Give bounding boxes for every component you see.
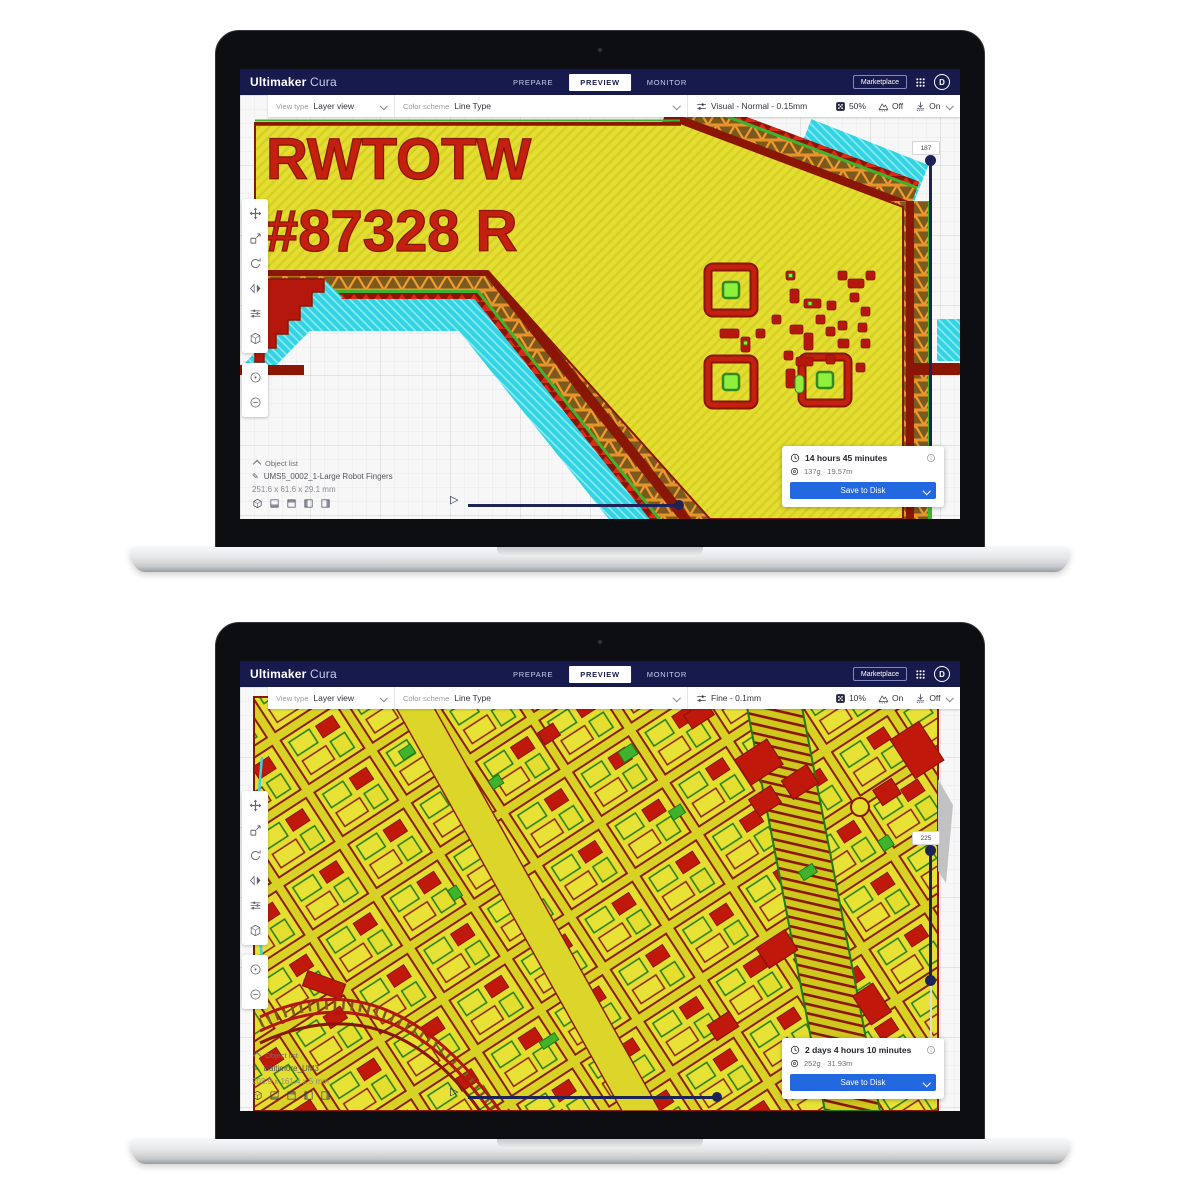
extruder-1-button[interactable] — [244, 365, 266, 390]
profile-value: Visual - Normal - 0.15mm — [711, 101, 807, 111]
infill-icon — [835, 101, 846, 112]
object-dimensions: 251.6 x 61.6 x 29.1 mm — [252, 485, 467, 494]
extruder-panel — [242, 363, 268, 417]
laptop-base — [130, 1139, 1070, 1164]
view-right-button[interactable] — [320, 498, 331, 509]
support-setting: On — [878, 693, 903, 704]
simulation-scrubber-track[interactable] — [468, 504, 680, 507]
tab-monitor[interactable]: MONITOR — [647, 78, 687, 87]
object-list-header[interactable]: Object list — [252, 1051, 467, 1060]
object-list-panel: Object list ✎ UMS5_0002_1-Large Robot Fi… — [252, 459, 467, 509]
adhesion-value: Off — [929, 693, 940, 703]
view-top-button[interactable] — [286, 498, 297, 509]
object-list-title: Object list — [265, 459, 298, 468]
marketplace-button[interactable]: Marketplace — [853, 75, 907, 89]
model-text-line2: #87328 R — [266, 199, 518, 264]
clock-icon — [790, 1045, 800, 1055]
adhesion-icon — [915, 101, 926, 112]
save-button-label: Save to Disk — [841, 486, 886, 495]
object-list-item[interactable]: ✎ UMS5_0002_1-Large Robot Fingers — [252, 472, 467, 481]
simulation-scrubber-track[interactable] — [468, 1096, 720, 1099]
view-left-button[interactable] — [303, 1090, 314, 1101]
object-list-header[interactable]: Object list — [252, 459, 467, 468]
rotate-tool-button[interactable] — [244, 843, 266, 868]
layer-slider-top-handle[interactable] — [925, 155, 936, 166]
simulation-scrubber-handle[interactable] — [712, 1092, 722, 1102]
print-settings-summary[interactable]: Visual - Normal - 0.15mm 50% Off On — [688, 95, 960, 117]
support-icon — [878, 693, 889, 704]
save-button-label: Save to Disk — [841, 1078, 886, 1087]
laptop-lid-notch — [497, 1139, 703, 1149]
tab-preview[interactable]: PREVIEW — [569, 74, 631, 91]
model-tools-panel — [242, 199, 268, 353]
camera-view-buttons — [252, 1090, 467, 1101]
extruder-2-button[interactable] — [244, 390, 266, 415]
support-value: Off — [892, 101, 903, 111]
chevron-down-icon — [945, 694, 953, 702]
app-header: Ultimaker Cura PREPARE PREVIEW MONITOR M… — [240, 69, 960, 95]
save-to-disk-button[interactable]: Save to Disk — [790, 1074, 936, 1091]
color-scheme-label: Color scheme — [403, 694, 449, 703]
adhesion-setting: Off — [915, 693, 940, 704]
material-usage: 252g · 31.93m — [804, 1059, 852, 1068]
view-left-button[interactable] — [303, 498, 314, 509]
color-scheme-dropdown[interactable]: Color scheme Line Type — [395, 95, 688, 117]
print-settings-summary[interactable]: Fine - 0.1mm 10% On Off — [688, 687, 960, 709]
color-scheme-label: Color scheme — [403, 102, 449, 111]
infill-icon — [835, 693, 846, 704]
infill-setting: 10% — [835, 693, 866, 704]
material-spool-icon — [790, 1059, 799, 1068]
print-duration: 2 days 4 hours 10 minutes — [805, 1045, 911, 1055]
mirror-tool-button[interactable] — [244, 868, 266, 893]
rename-pencil-icon: ✎ — [252, 473, 259, 481]
scale-tool-button[interactable] — [244, 226, 266, 251]
per-model-settings-button[interactable] — [244, 301, 266, 326]
laptop-screen-bezel: Ultimaker Cura PREPARE PREVIEW MONITOR M… — [215, 622, 985, 1140]
layer-slider-track[interactable] — [929, 849, 932, 981]
profile-sliders-icon — [696, 693, 707, 704]
object-list-item[interactable]: ✎ Baltimore_UM3 — [252, 1064, 467, 1073]
view-type-dropdown[interactable]: View type Layer view — [268, 95, 395, 117]
object-list-panel: Object list ✎ Baltimore_UM3 203.9 x 161.… — [252, 1051, 467, 1101]
infill-value: 50% — [849, 101, 866, 111]
view-3d-button[interactable] — [252, 498, 263, 509]
support-setting: Off — [878, 101, 903, 112]
view-type-label: View type — [276, 102, 308, 111]
webcam-icon — [598, 640, 602, 644]
stage-tabs: PREPARE PREVIEW MONITOR — [513, 69, 687, 95]
per-model-settings-button[interactable] — [244, 893, 266, 918]
chevron-down-icon — [922, 1079, 930, 1087]
3d-viewport[interactable]: View type Layer view Color scheme Line T… — [240, 687, 960, 1111]
laptop-bottom: Ultimaker Cura PREPARE PREVIEW MONITOR M… — [215, 622, 985, 1164]
support-value: On — [892, 693, 903, 703]
object-dimensions: 203.9 x 161.4 x 5 mm — [252, 1077, 467, 1086]
chevron-down-icon — [379, 694, 387, 702]
move-tool-button[interactable] — [244, 201, 266, 226]
adhesion-value: On — [929, 101, 940, 111]
color-scheme-value: Line Type — [454, 101, 491, 111]
layer-number-badge: 187 — [912, 141, 940, 155]
save-to-disk-button[interactable]: Save to Disk — [790, 482, 936, 499]
tab-preview[interactable]: PREVIEW — [569, 666, 631, 683]
collapse-caret-icon — [253, 459, 261, 467]
rotate-tool-button[interactable] — [244, 251, 266, 276]
view-top-button[interactable] — [286, 1090, 297, 1101]
3d-viewport[interactable]: RWTOTW #87328 R View type Layer view Col… — [240, 95, 960, 519]
model-shadow — [938, 779, 953, 883]
view-3d-button[interactable] — [252, 1090, 263, 1101]
chevron-down-icon — [672, 694, 680, 702]
print-summary-card: 2 days 4 hours 10 minutes 252g · 31.93m … — [782, 1038, 944, 1099]
collapse-caret-icon — [253, 1051, 261, 1059]
app-logo: Ultimaker Cura — [250, 667, 337, 681]
layer-number-badge: 225 — [912, 831, 940, 845]
tab-prepare[interactable]: PREPARE — [513, 670, 553, 679]
print-duration: 14 hours 45 minutes — [805, 453, 887, 463]
profile-sliders-icon — [696, 101, 707, 112]
model-tools-panel — [242, 791, 268, 945]
support-blocker-button[interactable] — [244, 918, 266, 943]
adhesion-setting: On — [915, 101, 940, 112]
scale-tool-button[interactable] — [244, 818, 266, 843]
webcam-icon — [598, 48, 602, 52]
info-icon[interactable] — [926, 1045, 936, 1055]
chevron-down-icon — [922, 487, 930, 495]
infill-setting: 50% — [835, 101, 866, 112]
material-usage: 137g · 19.57m — [804, 467, 852, 476]
simulation-scrubber-handle[interactable] — [674, 500, 684, 510]
rename-pencil-icon: ✎ — [252, 1065, 259, 1073]
color-scheme-dropdown[interactable]: Color scheme Line Type — [395, 687, 688, 709]
support-icon — [878, 101, 889, 112]
top-edge-walls — [255, 121, 681, 125]
support-blocker-button[interactable] — [244, 326, 266, 351]
laptop-base — [130, 547, 1070, 572]
view-type-value: Layer view — [313, 693, 354, 703]
chevron-down-icon — [379, 102, 387, 110]
laptop-lid-notch — [497, 547, 703, 557]
mirror-tool-button[interactable] — [244, 276, 266, 301]
marketplace-button[interactable]: Marketplace — [853, 667, 907, 681]
laptop-top: Ultimaker Cura PREPARE PREVIEW MONITOR M… — [215, 30, 985, 572]
object-list-title: Object list — [265, 1051, 298, 1060]
account-avatar[interactable]: D — [934, 74, 950, 90]
object-name: Baltimore_UM3 — [264, 1064, 319, 1073]
cura-window: Ultimaker Cura PREPARE PREVIEW MONITOR M… — [240, 69, 960, 519]
clock-icon — [790, 453, 800, 463]
app-switcher-grid-icon[interactable] — [915, 669, 926, 680]
infill-value: 10% — [849, 693, 866, 703]
tab-prepare[interactable]: PREPARE — [513, 78, 553, 87]
view-type-value: Layer view — [313, 101, 354, 111]
info-icon[interactable] — [926, 453, 936, 463]
chevron-down-icon — [672, 102, 680, 110]
laptop-screen-bezel: Ultimaker Cura PREPARE PREVIEW MONITOR M… — [215, 30, 985, 548]
view-options-bar: View type Layer view Color scheme Line T… — [268, 687, 960, 709]
round-building — [851, 798, 869, 816]
adhesion-icon — [915, 693, 926, 704]
tab-monitor[interactable]: MONITOR — [647, 670, 687, 679]
view-front-button[interactable] — [269, 498, 280, 509]
camera-view-buttons — [252, 498, 467, 509]
app-logo: Ultimaker Cura — [250, 75, 337, 89]
extruder-1-button[interactable] — [244, 957, 266, 982]
app-header: Ultimaker Cura PREPARE PREVIEW MONITOR M… — [240, 661, 960, 687]
profile-value: Fine - 0.1mm — [711, 693, 761, 703]
app-switcher-grid-icon[interactable] — [915, 77, 926, 88]
view-type-label: View type — [276, 694, 308, 703]
view-front-button[interactable] — [269, 1090, 280, 1101]
extruder-2-button[interactable] — [244, 982, 266, 1007]
layer-slider-bottom-handle[interactable] — [925, 975, 936, 986]
layer-slider-top-handle[interactable] — [925, 845, 936, 856]
view-right-button[interactable] — [320, 1090, 331, 1101]
model-text-line1: RWTOTW — [266, 127, 532, 192]
print-summary-card: 14 hours 45 minutes 137g · 19.57m Save t… — [782, 446, 944, 507]
move-tool-button[interactable] — [244, 793, 266, 818]
extruder-panel — [242, 955, 268, 1009]
chevron-down-icon — [945, 102, 953, 110]
material-spool-icon — [790, 467, 799, 476]
color-scheme-value: Line Type — [454, 693, 491, 703]
account-avatar[interactable]: D — [934, 666, 950, 682]
object-name: UMS5_0002_1-Large Robot Fingers — [264, 472, 393, 481]
view-options-bar: View type Layer view Color scheme Line T… — [268, 95, 960, 117]
cura-window: Ultimaker Cura PREPARE PREVIEW MONITOR M… — [240, 661, 960, 1111]
stage-tabs: PREPARE PREVIEW MONITOR — [513, 661, 687, 687]
view-type-dropdown[interactable]: View type Layer view — [268, 687, 395, 709]
